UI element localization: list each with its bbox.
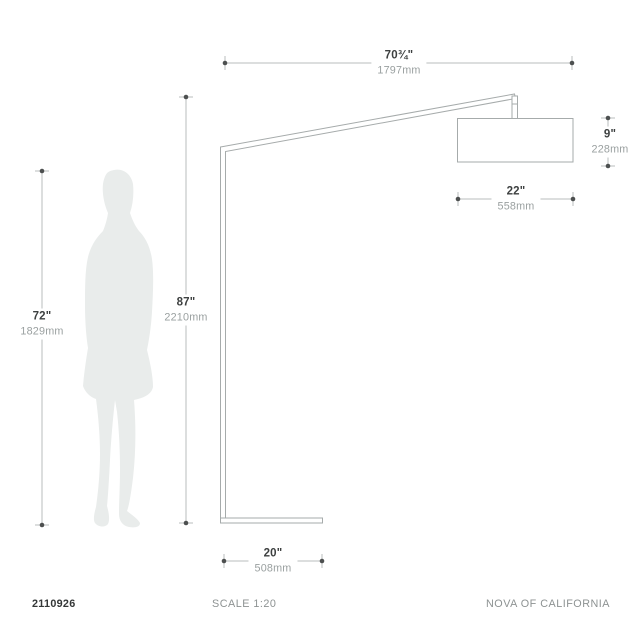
dim-label-person-height: 72" 1829mm bbox=[14, 309, 69, 340]
dim-value: 70¾" bbox=[377, 49, 420, 64]
diagram-svg bbox=[0, 0, 640, 640]
dim-label-lamp-height: 87" 2210mm bbox=[158, 295, 213, 326]
dim-metric: 508mm bbox=[254, 561, 291, 575]
dim-value: 9" bbox=[591, 128, 628, 143]
lamp-shade bbox=[458, 119, 574, 163]
dim-metric: 1829mm bbox=[20, 324, 63, 338]
dim-label-arm-span: 70¾" 1797mm bbox=[371, 48, 426, 79]
lamp-base bbox=[221, 518, 323, 523]
dim-label-shade-width: 22" 558mm bbox=[491, 184, 540, 215]
dim-label-shade-height: 9" 228mm bbox=[585, 127, 634, 158]
dim-metric: 1797mm bbox=[377, 63, 420, 77]
lamp-drawing bbox=[221, 94, 574, 523]
scale-label: SCALE 1:20 bbox=[212, 598, 276, 610]
dim-metric: 558mm bbox=[497, 199, 534, 213]
dim-metric: 2210mm bbox=[164, 310, 207, 324]
dim-value: 22" bbox=[497, 185, 534, 200]
dim-metric: 228mm bbox=[591, 142, 628, 156]
dim-value: 20" bbox=[254, 547, 291, 562]
dim-value: 72" bbox=[20, 310, 63, 325]
dim-value: 87" bbox=[164, 296, 207, 311]
item-number: 2110926 bbox=[32, 598, 76, 610]
spec-sheet: 70¾" 1797mm 87" 2210mm 72" 1829mm 9" 228… bbox=[0, 0, 640, 640]
brand-name: NOVA OF CALIFORNIA bbox=[486, 598, 610, 610]
person-silhouette bbox=[83, 170, 153, 528]
dim-label-base-length: 20" 508mm bbox=[248, 546, 297, 577]
lamp-stem bbox=[512, 96, 518, 119]
